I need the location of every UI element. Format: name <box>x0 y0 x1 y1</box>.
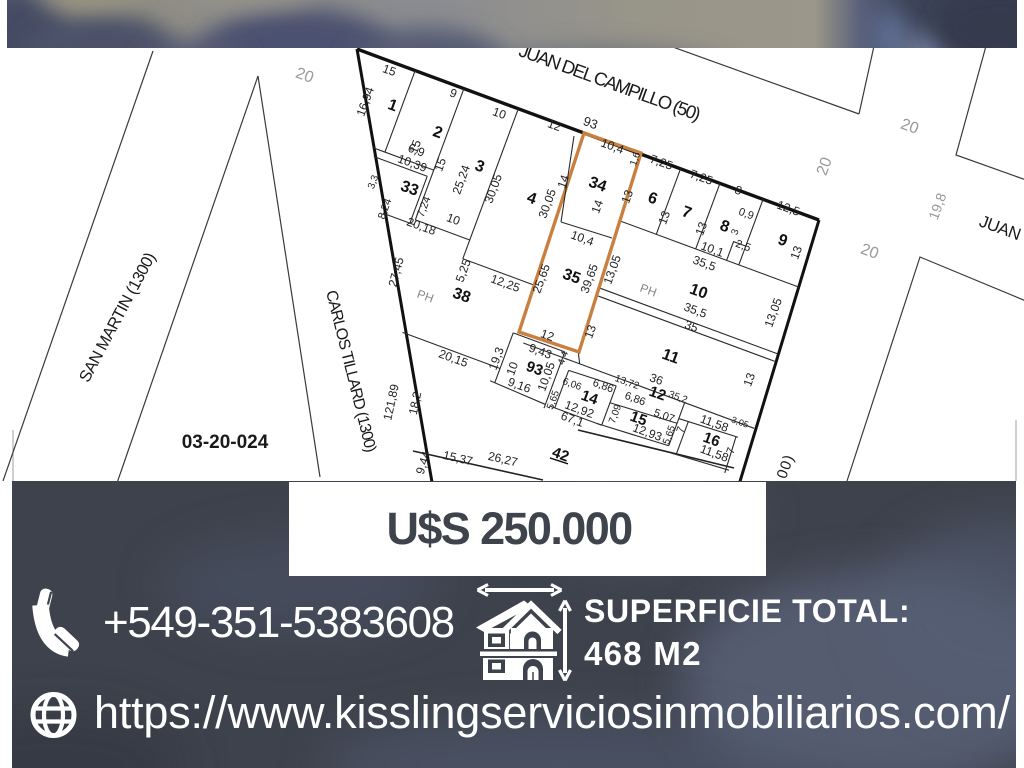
svg-text:https://www.kisslingserviciosi: https://www.kisslingserviciosinmobiliari… <box>94 687 1011 738</box>
svg-text:468 M2: 468 M2 <box>584 635 702 672</box>
svg-text:U$S 250.000: U$S 250.000 <box>386 503 632 554</box>
svg-text:+549-351-5383608: +549-351-5383608 <box>103 598 454 647</box>
svg-text:03-20-024: 03-20-024 <box>182 432 269 453</box>
svg-text:SUPERFICIE TOTAL:: SUPERFICIE TOTAL: <box>584 593 910 629</box>
